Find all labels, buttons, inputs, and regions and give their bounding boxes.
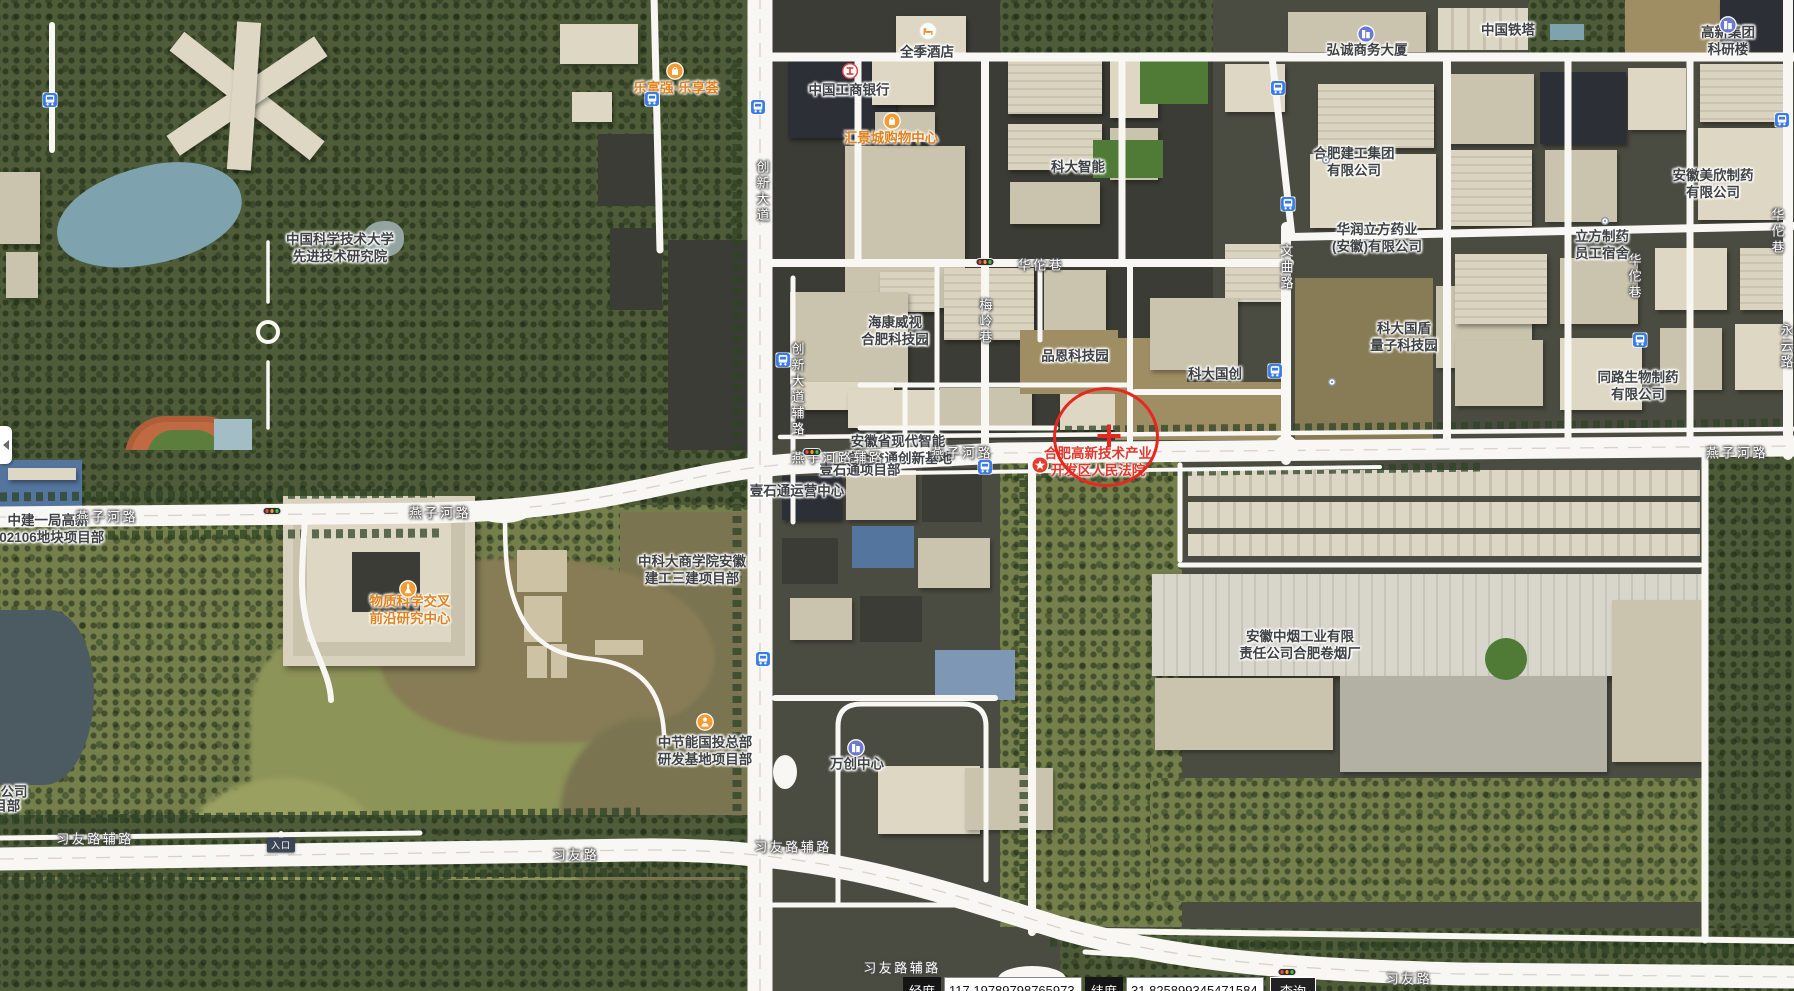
longitude-label: 经度 [903,977,941,991]
latitude-label: 纬度 [1085,977,1123,991]
left-arrow-icon [3,440,9,450]
latitude-input[interactable] [1126,977,1264,991]
coordinate-bar: 经度 纬度 查询 [903,977,1316,991]
satellite-map-canvas[interactable]: 中国科学技术大学 先进技术研究院全季酒店中国工商银行汇景城购物中心乐富强·乐享荟… [0,0,1794,991]
entrance-badge: 入口 [267,838,295,853]
longitude-input[interactable] [944,977,1082,991]
collapse-panel-button[interactable] [0,426,12,464]
query-button[interactable]: 查询 [1270,977,1316,991]
